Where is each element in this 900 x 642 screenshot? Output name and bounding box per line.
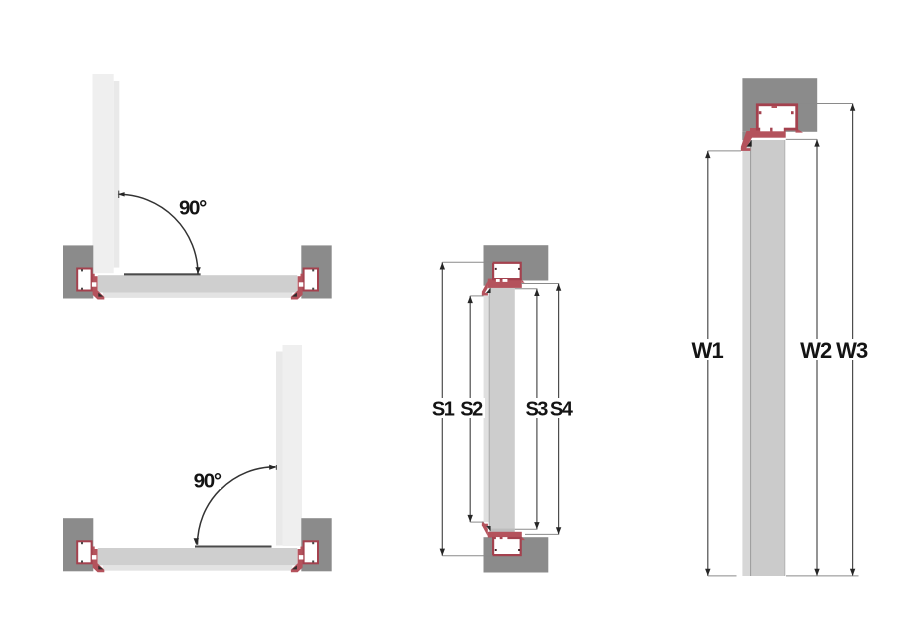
- svg-text:W1: W1: [691, 338, 723, 363]
- svg-text:S3: S3: [525, 398, 548, 420]
- svg-text:90°: 90°: [194, 470, 222, 493]
- svg-text:90°: 90°: [179, 197, 207, 220]
- svg-text:S4: S4: [550, 398, 574, 420]
- svg-text:W3: W3: [836, 338, 868, 363]
- svg-text:S1: S1: [432, 398, 455, 420]
- svg-text:W2: W2: [800, 338, 832, 363]
- svg-text:S2: S2: [460, 398, 483, 420]
